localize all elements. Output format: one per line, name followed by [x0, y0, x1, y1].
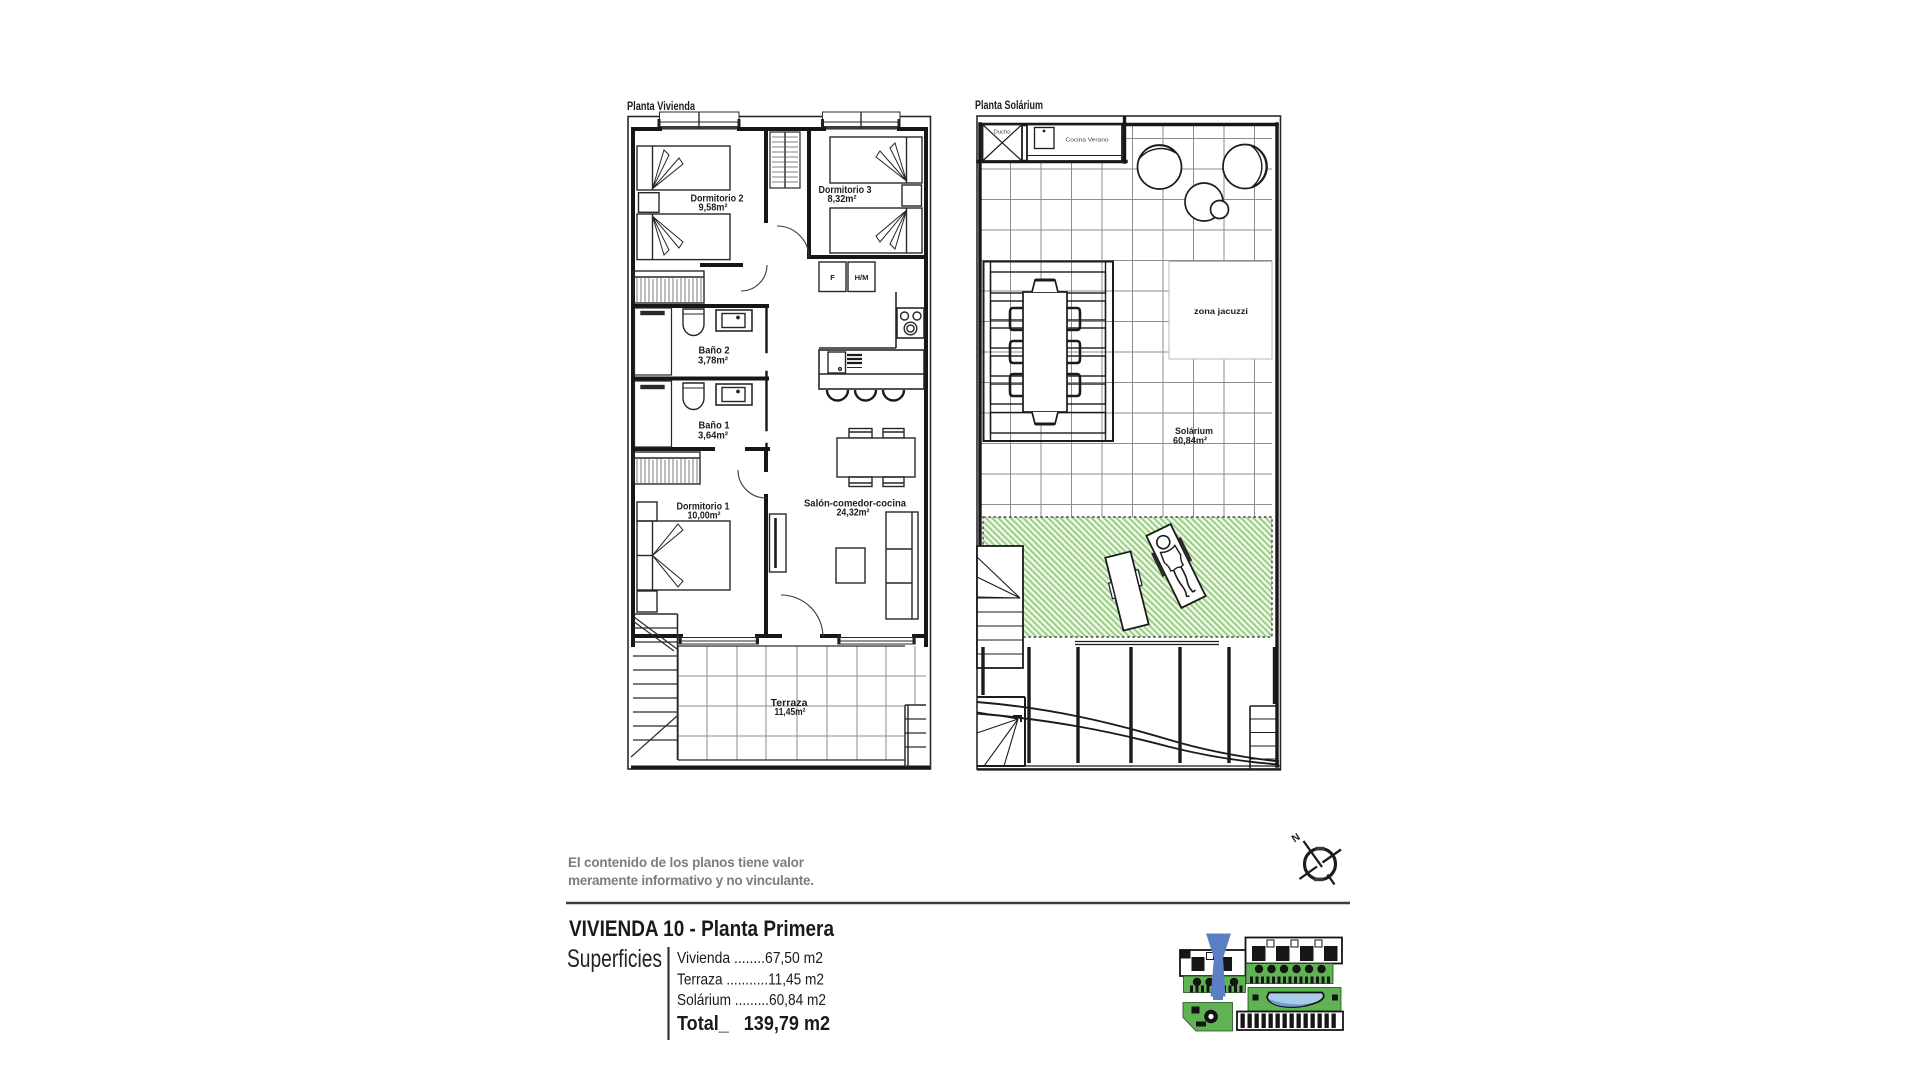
svg-text:meramente informativo y no vin: meramente informativo y no vinculante.	[568, 873, 814, 888]
svg-text:10,00m²: 10,00m²	[688, 511, 722, 522]
svg-text:9,58m²: 9,58m²	[699, 203, 729, 214]
svg-text:Cocina Verano: Cocina Verano	[1066, 138, 1109, 144]
svg-text:Vivienda ........67,50 m2: Vivienda ........67,50 m2	[677, 950, 823, 967]
svg-text:8,32m²: 8,32m²	[828, 194, 858, 205]
svg-text:Planta Solárium: Planta Solárium	[975, 100, 1043, 112]
svg-text:Total_ 139,79 m2: Total_ 139,79 m2	[677, 1013, 830, 1035]
svg-text:11,45m²: 11,45m²	[775, 707, 807, 718]
svg-text:Solárium .........60,84 m2: Solárium .........60,84 m2	[677, 992, 826, 1009]
svg-text:VIVIENDA 10 - Planta Primera: VIVIENDA 10 - Planta Primera	[569, 916, 835, 941]
svg-text:H/M: H/M	[855, 273, 869, 282]
svg-text:Planta Vivienda: Planta Vivienda	[627, 101, 695, 113]
svg-text:60,84m²: 60,84m²	[1173, 436, 1207, 447]
svg-text:3,78m²: 3,78m²	[698, 356, 729, 367]
svg-text:zona jacuzzi: zona jacuzzi	[1194, 307, 1248, 316]
svg-text:Superficies: Superficies	[567, 945, 662, 973]
svg-text:Ducho: Ducho	[994, 130, 1011, 136]
svg-text:Terraza ...........11,45 m2: Terraza ...........11,45 m2	[677, 972, 824, 989]
svg-text:El contenido de los planos tie: El contenido de los planos tiene valor	[568, 855, 805, 870]
svg-text:F: F	[830, 273, 835, 282]
svg-text:24,32m²: 24,32m²	[837, 508, 871, 519]
svg-text:3,64m²: 3,64m²	[698, 431, 729, 442]
